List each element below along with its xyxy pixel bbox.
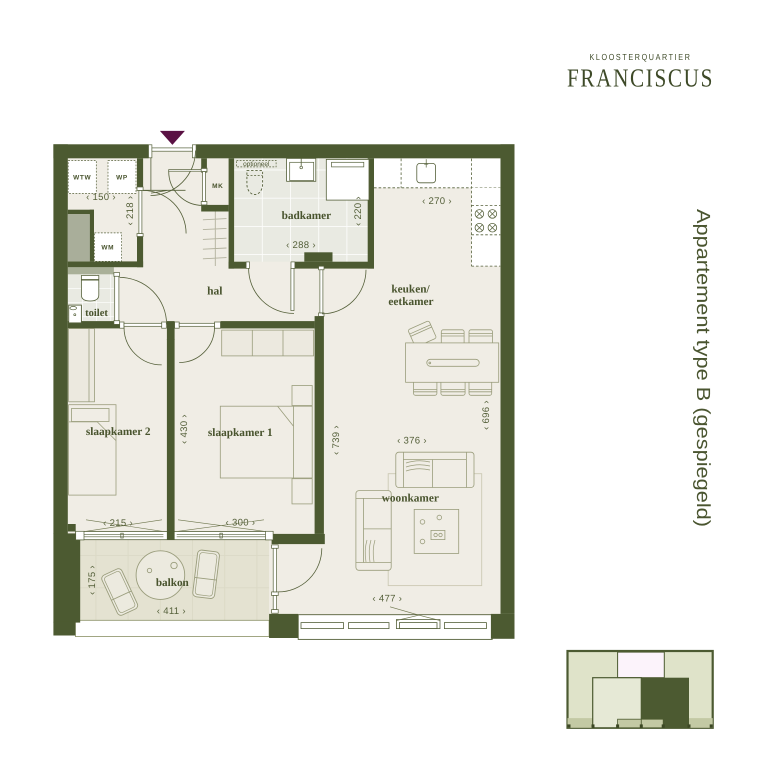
svg-text:hal: hal: [207, 286, 222, 298]
svg-text:woonkamer: woonkamer: [382, 493, 439, 505]
svg-text:‹ 376 ›: ‹ 376 ›: [397, 436, 427, 447]
svg-text:‹ 430 ›: ‹ 430 ›: [179, 414, 190, 444]
svg-text:‹ 477 ›: ‹ 477 ›: [372, 594, 402, 605]
svg-text:‹ 696 ›: ‹ 696 ›: [481, 400, 492, 430]
svg-text:‹ 175 ›: ‹ 175 ›: [87, 565, 98, 595]
svg-text:balkon: balkon: [156, 577, 190, 589]
svg-text:‹ 288 ›: ‹ 288 ›: [286, 240, 316, 251]
svg-text:‹ 218 ›: ‹ 218 ›: [125, 196, 136, 226]
svg-text:‹ 215 ›: ‹ 215 ›: [103, 518, 133, 529]
svg-text:‹ 411 ›: ‹ 411 ›: [157, 606, 186, 617]
svg-text:slaapkamer 2: slaapkamer 2: [86, 426, 151, 438]
svg-text:WP: WP: [116, 175, 128, 182]
svg-text:slaapkamer 1: slaapkamer 1: [208, 427, 273, 439]
svg-text:Appartement type B (gespiegeld: Appartement type B (gespiegeld): [692, 209, 713, 527]
svg-text:badkamer: badkamer: [282, 210, 332, 222]
svg-text:WTW: WTW: [73, 175, 91, 182]
svg-text:‹ 270 ›: ‹ 270 ›: [422, 196, 452, 207]
svg-text:optioneel: optioneel: [243, 161, 270, 168]
svg-text:KLOOSTERQUARTIER: KLOOSTERQUARTIER: [590, 52, 692, 62]
svg-text:FRANCISCUS: FRANCISCUS: [567, 64, 714, 93]
svg-text:‹ 739 ›: ‹ 739 ›: [331, 425, 342, 455]
svg-text:eetkamer: eetkamer: [388, 296, 433, 308]
svg-text:‹ 220 ›: ‹ 220 ›: [353, 196, 364, 226]
svg-text:‹ 300 ›: ‹ 300 ›: [225, 518, 255, 529]
svg-text:keuken/: keuken/: [391, 283, 430, 295]
svg-text:MK: MK: [212, 183, 223, 190]
svg-text:‹ 150 ›: ‹ 150 ›: [86, 192, 116, 203]
svg-text:toilet: toilet: [85, 308, 108, 319]
svg-text:WM: WM: [101, 245, 114, 252]
